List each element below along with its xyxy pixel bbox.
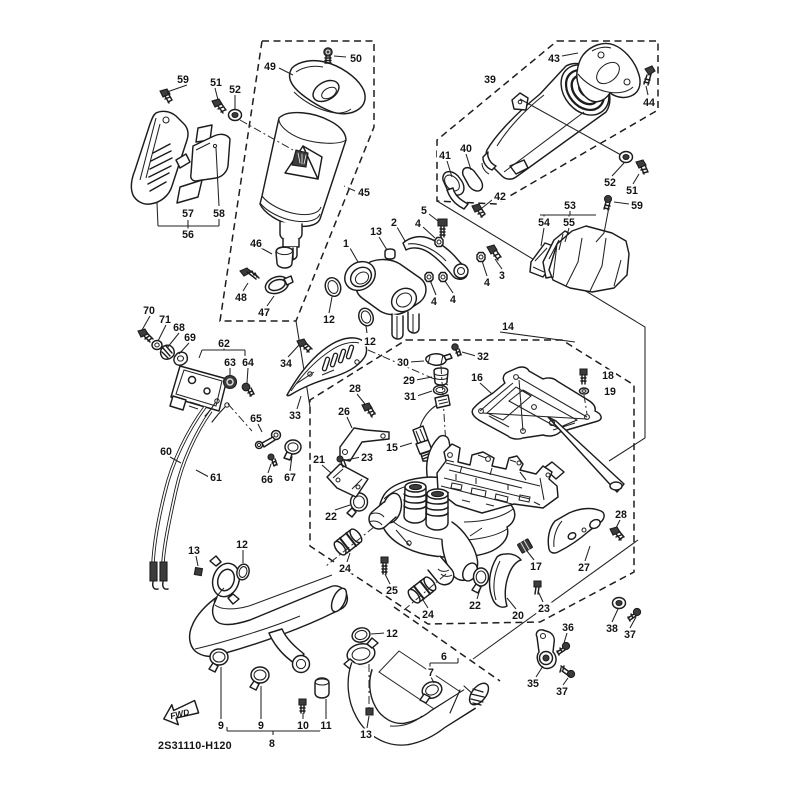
svg-text:44: 44	[643, 97, 655, 109]
svg-text:4: 4	[484, 277, 490, 289]
svg-text:33: 33	[289, 410, 301, 422]
svg-text:22: 22	[325, 511, 337, 523]
svg-text:13: 13	[370, 226, 382, 238]
svg-text:58: 58	[213, 208, 225, 220]
svg-text:52: 52	[604, 177, 616, 189]
svg-text:60: 60	[160, 446, 172, 458]
svg-text:69: 69	[184, 332, 196, 344]
svg-text:10: 10	[297, 720, 309, 732]
svg-text:16: 16	[471, 372, 483, 384]
svg-text:37: 37	[624, 629, 636, 641]
svg-text:51: 51	[626, 185, 638, 197]
svg-text:71: 71	[159, 314, 171, 326]
svg-text:12: 12	[236, 539, 248, 551]
svg-text:17: 17	[530, 561, 542, 573]
svg-text:45: 45	[358, 187, 370, 199]
svg-text:62: 62	[218, 338, 230, 350]
svg-text:2: 2	[391, 217, 397, 229]
svg-text:56: 56	[182, 229, 194, 241]
svg-text:47: 47	[258, 307, 270, 319]
svg-text:67: 67	[284, 472, 296, 484]
svg-text:42: 42	[494, 191, 506, 203]
svg-text:54: 54	[538, 217, 550, 229]
svg-text:52: 52	[229, 84, 241, 96]
svg-text:19: 19	[604, 386, 616, 398]
svg-text:28: 28	[615, 509, 627, 521]
svg-text:43: 43	[548, 53, 560, 65]
svg-text:5: 5	[421, 205, 427, 217]
svg-text:37: 37	[556, 686, 568, 698]
svg-text:24: 24	[422, 609, 434, 621]
svg-text:14: 14	[502, 321, 514, 333]
svg-text:20: 20	[512, 610, 524, 622]
svg-text:59: 59	[177, 74, 189, 86]
svg-text:4: 4	[415, 218, 421, 230]
svg-text:29: 29	[403, 375, 415, 387]
svg-text:49: 49	[264, 61, 276, 73]
svg-text:12: 12	[386, 628, 398, 640]
svg-text:23: 23	[361, 452, 373, 464]
svg-text:12: 12	[364, 336, 376, 348]
svg-text:18: 18	[602, 370, 614, 382]
svg-text:40: 40	[460, 143, 472, 155]
svg-text:13: 13	[360, 729, 372, 741]
svg-text:1: 1	[343, 238, 349, 250]
svg-text:36: 36	[562, 622, 574, 634]
svg-text:53: 53	[564, 200, 576, 212]
svg-text:15: 15	[386, 442, 398, 454]
svg-text:35: 35	[527, 678, 539, 690]
svg-text:4: 4	[450, 294, 456, 306]
svg-text:66: 66	[261, 474, 273, 486]
svg-text:9: 9	[258, 720, 264, 732]
svg-text:22: 22	[469, 600, 481, 612]
svg-text:34: 34	[280, 358, 292, 370]
svg-text:48: 48	[235, 292, 247, 304]
svg-text:32: 32	[477, 351, 489, 363]
svg-text:61: 61	[210, 472, 222, 484]
svg-text:57: 57	[182, 208, 194, 220]
svg-text:31: 31	[404, 391, 416, 403]
svg-text:46: 46	[250, 238, 262, 250]
svg-text:27: 27	[578, 562, 590, 574]
svg-text:2S31110-H120: 2S31110-H120	[158, 740, 232, 752]
svg-text:38: 38	[606, 623, 618, 635]
svg-text:3: 3	[499, 270, 505, 282]
svg-text:51: 51	[210, 77, 222, 89]
svg-text:64: 64	[242, 357, 254, 369]
svg-text:21: 21	[313, 454, 325, 466]
svg-text:70: 70	[143, 305, 155, 317]
svg-text:26: 26	[338, 406, 350, 418]
svg-text:25: 25	[386, 585, 398, 597]
svg-text:9: 9	[218, 720, 224, 732]
svg-text:65: 65	[250, 413, 262, 425]
svg-text:11: 11	[320, 720, 331, 732]
svg-text:30: 30	[397, 357, 409, 369]
svg-text:24: 24	[339, 563, 351, 575]
svg-text:55: 55	[563, 217, 575, 229]
svg-text:7: 7	[428, 667, 434, 679]
svg-text:23: 23	[538, 603, 550, 615]
svg-text:4: 4	[431, 296, 437, 308]
svg-text:28: 28	[349, 383, 361, 395]
svg-text:8: 8	[269, 738, 275, 750]
svg-text:50: 50	[350, 53, 362, 65]
svg-text:63: 63	[224, 357, 236, 369]
svg-text:39: 39	[484, 74, 496, 86]
svg-text:41: 41	[439, 150, 451, 162]
svg-text:6: 6	[441, 651, 447, 663]
svg-text:12: 12	[323, 314, 335, 326]
svg-text:59: 59	[631, 200, 643, 212]
svg-text:13: 13	[188, 545, 200, 557]
